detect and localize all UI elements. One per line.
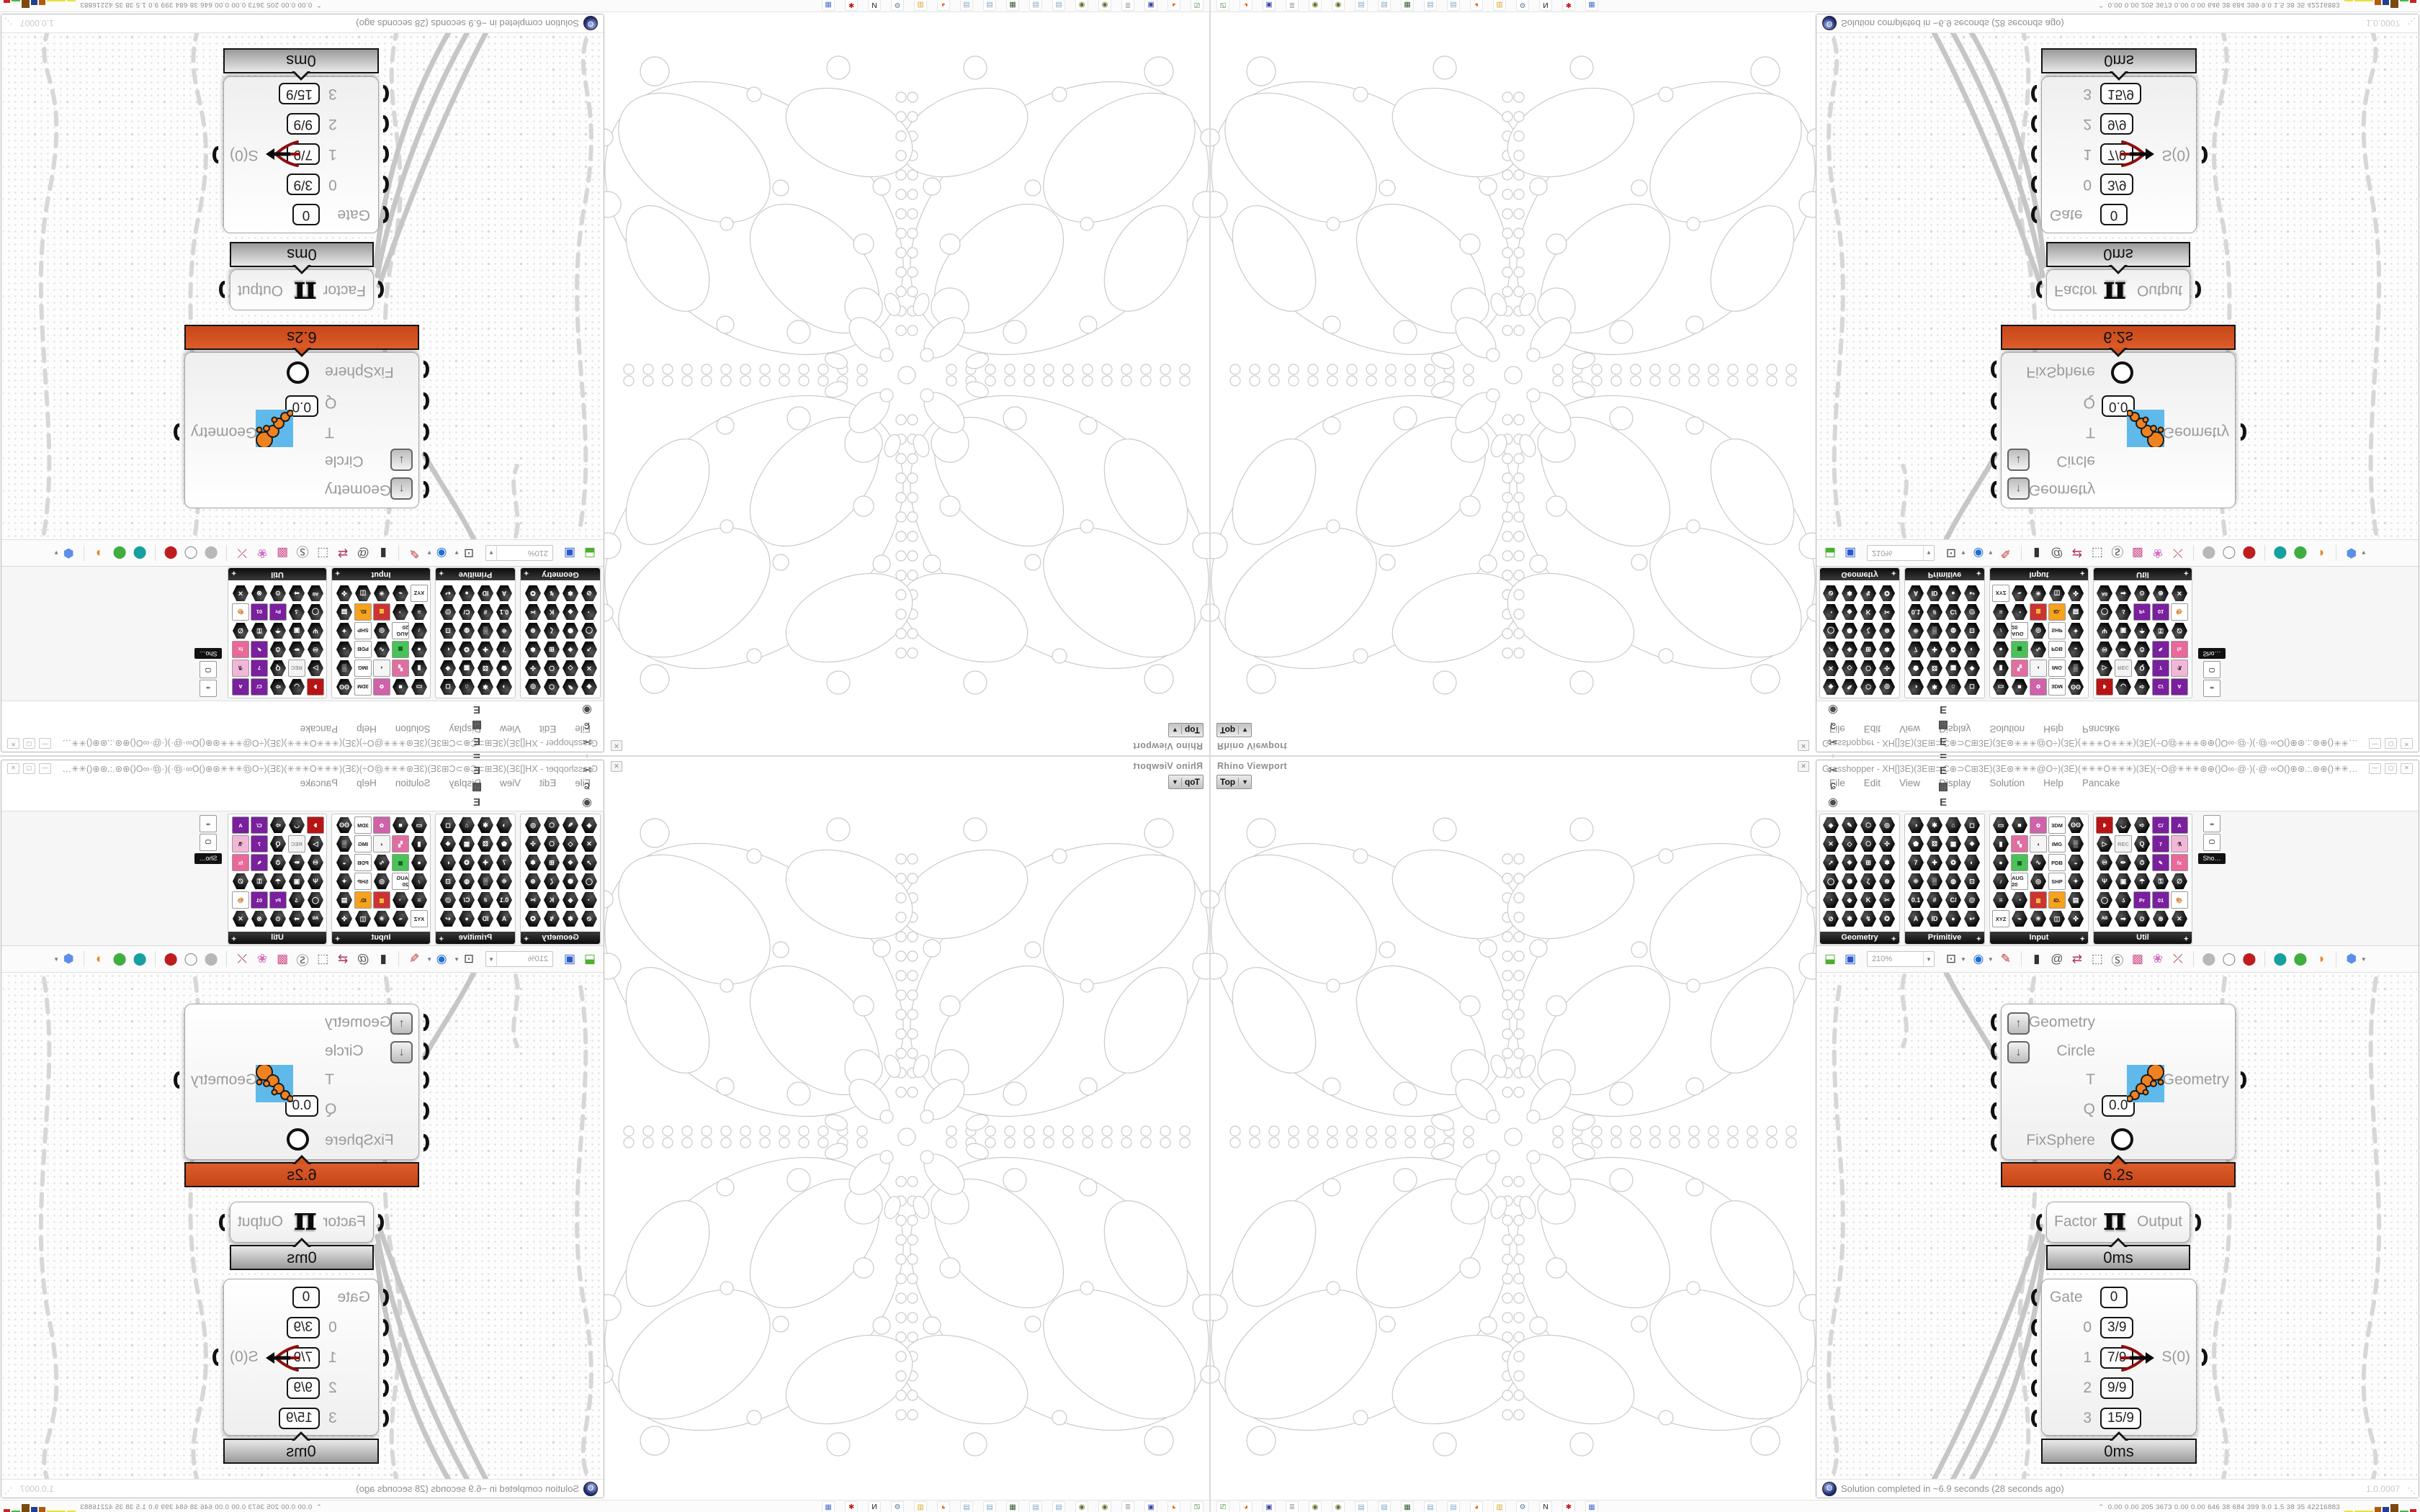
palette-icon[interactable]: ✦	[2067, 873, 2084, 890]
taskbar-icon[interactable]: ◕	[937, 1501, 950, 1512]
palette-icon[interactable]: C/	[251, 816, 268, 834]
palette-icon[interactable]: ⬡	[543, 678, 560, 696]
palette-label[interactable]: Geometry✦	[1820, 568, 1899, 580]
palette-icon[interactable]: C/	[2152, 816, 2169, 834]
component-pi[interactable]: Factor π Output	[2046, 269, 2190, 310]
taskbar-icon[interactable]: ◉	[1332, 1501, 1345, 1512]
palette-icon[interactable]: ▷	[307, 660, 324, 677]
taskbar-icon[interactable]: ▤	[1355, 1501, 1368, 1512]
title-bar[interactable]: Grasshopper - XH[]3E)(3E⊞⊃C⊕⊃C⊞3E)(3E⊛✳✳…	[1816, 736, 2419, 752]
menu-pancake[interactable]: Pancake	[300, 721, 339, 734]
palette-icon[interactable]: ⊡	[1963, 873, 1981, 890]
palette-icon[interactable]: A	[496, 585, 513, 602]
up-arrow-button[interactable]: ↑	[2007, 1012, 2030, 1035]
palette-icon[interactable]: #	[477, 603, 494, 621]
palette-icon[interactable]: ⬟	[496, 835, 513, 852]
taskbar-icon[interactable]: ◉	[1098, 1501, 1111, 1512]
component-main[interactable]: ↑ ↓ Geometry Circle T Q FixSphere 0.0	[2001, 352, 2236, 508]
gate-value-box[interactable]: 3/9	[2100, 174, 2133, 195]
palette-icon[interactable]: Ψ	[2096, 622, 2113, 639]
overflow-label[interactable]: Sho…	[194, 853, 222, 864]
palette-label[interactable]: Primitive✦	[436, 932, 515, 944]
taskbar-icon[interactable]: ▤	[1447, 1501, 1460, 1512]
palette-icon[interactable]: ◯	[307, 603, 324, 621]
save-file-icon[interactable]: ▣	[1842, 545, 1858, 561]
chevron-down-icon[interactable]: ▼	[1923, 952, 1934, 966]
palette-icon[interactable]: ડ	[288, 891, 305, 909]
palette-icon[interactable]: ●	[1992, 854, 2009, 871]
palette-icon[interactable]: ⊛	[524, 873, 542, 890]
gate-value-box[interactable]: 3/9	[287, 174, 320, 195]
palette-icon[interactable]: ◐	[1963, 641, 1981, 658]
component-gate[interactable]: Gate003/917/929/9315/9 S(0)	[223, 76, 379, 233]
palette-icon[interactable]: ID	[477, 585, 494, 602]
palette-icon[interactable]: ⎔	[1860, 660, 1877, 677]
palette-icon[interactable]: ⬢	[1841, 873, 1858, 890]
palette-icon[interactable]: ◒	[336, 854, 353, 871]
palette-icon[interactable]: ▒	[477, 873, 494, 890]
palette-icon[interactable]: ◒	[2067, 854, 2084, 871]
palette-icon[interactable]: ◔	[392, 891, 409, 909]
palette-icon[interactable]: 7	[251, 660, 268, 677]
palette-icon[interactable]: ▤	[2067, 603, 2084, 621]
toolbar-icon[interactable]: ⤫	[2170, 545, 2186, 561]
palette-label[interactable]: Util✦	[228, 568, 326, 580]
chevron-down-icon[interactable]: ▼	[486, 952, 497, 966]
palette-icon[interactable]: ✚	[477, 641, 494, 658]
palette-icon[interactable]: ▥	[2030, 603, 2047, 621]
gate-value-box[interactable]: 3/9	[2100, 1317, 2133, 1338]
gate-value-box[interactable]: 3/9	[287, 1317, 320, 1338]
palette-icon[interactable]: ◻	[1963, 678, 1981, 696]
palette-icon[interactable]: 7	[2152, 660, 2169, 677]
gate-value-box[interactable]: 0	[292, 1287, 320, 1308]
taskbar-icon[interactable]: ⎚	[1216, 0, 1229, 11]
taskbar-icon[interactable]: ◉	[1075, 0, 1088, 11]
palette-icon[interactable]: ▦	[2011, 641, 2028, 658]
palette-icon[interactable]: ⊞	[543, 854, 560, 871]
palette-icon[interactable]: @	[439, 603, 457, 621]
palette-icon[interactable]: ◍	[1945, 873, 1962, 890]
toolbar-icon[interactable]: Ⓢ	[295, 545, 310, 561]
palette-icon[interactable]: ⊡	[439, 873, 457, 890]
palette-icon[interactable]: ☂	[269, 873, 287, 890]
palette-icon[interactable]: ∅	[2171, 622, 2188, 639]
chevron-down-icon[interactable]: ▼	[1988, 550, 1994, 557]
palette-icon[interactable]: ID	[1926, 585, 1943, 602]
taskbar-icon[interactable]: ◕	[1168, 1501, 1180, 1512]
palette-label[interactable]: Input✦	[332, 932, 430, 944]
palette-icon[interactable]: ⎔	[1860, 835, 1877, 852]
palette-icon[interactable]: ❂	[1945, 641, 1962, 658]
palette-icon[interactable]: ➡	[2115, 910, 2132, 927]
palette-icon[interactable]: AUG 20	[392, 873, 409, 890]
palette-icon[interactable]: ↩	[439, 585, 457, 602]
save-file-icon[interactable]: ▣	[1842, 951, 1858, 967]
toolbar-icon[interactable]: ❀	[2150, 545, 2166, 561]
maximize-button[interactable]: ▢	[23, 763, 35, 774]
resize-grip[interactable]: ⋱	[2408, 17, 2416, 26]
palette-icon[interactable]: ▒	[1926, 873, 1943, 890]
palette-icon[interactable]: ❥	[307, 678, 324, 696]
palette-icon[interactable]: Q	[2133, 835, 2151, 852]
palette-icon[interactable]: ✽	[524, 641, 542, 658]
palette-icon[interactable]: ◎	[1878, 678, 1896, 696]
menu-help[interactable]: Help	[357, 721, 377, 734]
palette-icon[interactable]: ID	[1926, 910, 1943, 927]
palette-icon[interactable]: AUG 20	[2011, 873, 2028, 890]
palette-icon[interactable]: ✜	[336, 585, 353, 602]
palette-icon[interactable]: ◑	[1907, 816, 1924, 834]
palette-icon[interactable]: ✿	[373, 678, 390, 696]
palette-icon[interactable]: ✏	[2115, 854, 2132, 871]
palette-icon[interactable]: C/	[251, 678, 268, 696]
palette-icon[interactable]: ◡	[2115, 816, 2132, 834]
palette-icon[interactable]: A	[2171, 678, 2188, 696]
palette-label[interactable]: Util✦	[2094, 932, 2192, 944]
palette-icon[interactable]: ●	[458, 910, 475, 927]
toolbar-icon[interactable]: ❀	[2150, 951, 2166, 967]
toolbar-icon[interactable]: ⬤	[203, 951, 219, 967]
palette-icon[interactable]: ⏱	[269, 854, 287, 871]
toolbar-icon[interactable]: ⬤	[112, 545, 127, 561]
palette-icon[interactable]: ◎	[373, 622, 390, 639]
zoom-select[interactable]: 210% ▼	[485, 951, 553, 967]
viewport-close-icon[interactable]: ✕	[1798, 740, 1809, 751]
title-bar[interactable]: Grasshopper - XH[]3E)(3E⊞⊃C⊕⊃C⊞3E)(3E⊛✳✳…	[1, 760, 604, 776]
palette-icon[interactable]: ✕	[581, 660, 598, 677]
palette-icon[interactable]: ID.	[354, 603, 372, 621]
palette-icon[interactable]: ∿	[2030, 854, 2047, 871]
category-tab[interactable]: ɕ	[1821, 718, 1845, 734]
palette-icon[interactable]: ▒	[2067, 660, 2084, 677]
palette-icon[interactable]: ❂	[458, 854, 475, 871]
category-tab[interactable]: E	[1932, 702, 1955, 718]
palette-icon[interactable]: A	[232, 816, 249, 834]
palette-icon[interactable]: ❖	[562, 854, 579, 871]
palette-icon[interactable]: 3DM	[354, 678, 372, 696]
palette-icon[interactable]: ▚	[2011, 835, 2028, 852]
palette-icon[interactable]: ♪	[411, 622, 428, 639]
gate-value-box[interactable]: 0	[2100, 204, 2128, 225]
palette-label[interactable]: Input✦	[1990, 932, 2088, 944]
palette-icon[interactable]: ◔	[392, 603, 409, 621]
palette-icon[interactable]: IMG	[354, 660, 372, 677]
menu-edit[interactable]: Edit	[1864, 721, 1881, 734]
viewport-view-button[interactable]: Top ▼	[1168, 723, 1204, 737]
palette-icon[interactable]: 7	[1907, 641, 1924, 658]
toolbar-icon[interactable]: ⬚	[2089, 951, 2105, 967]
palette-icon[interactable]: ⌁	[2011, 910, 2028, 927]
palette-icon[interactable]: ➪	[2133, 816, 2151, 834]
palette-icon[interactable]: ∅	[232, 622, 249, 639]
up-arrow-button[interactable]: ↑	[2007, 477, 2030, 500]
palette-icon[interactable]: ✎	[251, 641, 268, 658]
palette-icon[interactable]: ☂	[2133, 622, 2151, 639]
toolbar-icon[interactable]: ⇄	[335, 951, 351, 967]
palette-icon[interactable]: ⌁	[392, 585, 409, 602]
palette-icon[interactable]: ◫	[354, 910, 372, 927]
palette-icon[interactable]: AUG 20	[392, 622, 409, 639]
palette-icon[interactable]: #	[1926, 603, 1943, 621]
toolbar-icon[interactable]: ⬤	[2241, 545, 2257, 561]
palette-icon[interactable]: ✂	[1878, 891, 1896, 909]
palette-icon[interactable]: ≡	[411, 603, 428, 621]
palette-icon[interactable]: ❖	[439, 660, 457, 677]
taskbar-icon[interactable]: ⚙	[1516, 1501, 1529, 1512]
gh-canvas[interactable]: ↑ ↓ Geometry Circle T Q FixSphere 0.0	[3, 30, 602, 539]
toolbar-icon[interactable]: ▮	[2029, 545, 2045, 561]
taskbar-icon[interactable]: ▤	[1424, 0, 1437, 11]
palette-icon[interactable]: ◎	[2030, 873, 2047, 890]
toolbar-icon[interactable]: ⬤	[2293, 545, 2308, 561]
palette-icon[interactable]: ▤	[336, 603, 353, 621]
palette-icon[interactable]: ⚗	[2171, 835, 2188, 852]
category-tab[interactable]: ✂	[575, 734, 599, 750]
toolbar-icon[interactable]: ⬤	[163, 545, 179, 561]
palette-icon[interactable]: ✣	[1878, 835, 1896, 852]
palette-icon[interactable]: ◔	[581, 891, 598, 909]
maximize-button[interactable]: ▢	[2385, 739, 2397, 750]
menu-solution[interactable]: Solution	[1989, 778, 2025, 791]
palette-icon[interactable]: ⚄	[477, 660, 494, 677]
taskbar-icon[interactable]: ⚙	[891, 1501, 904, 1512]
menu-solution[interactable]: Solution	[1989, 721, 2025, 734]
palette-icon[interactable]: A	[1907, 585, 1924, 602]
taskbar-icon[interactable]: ◕	[1240, 1501, 1252, 1512]
palette-icon[interactable]: ✚	[477, 854, 494, 871]
palette-icon[interactable]: ◡	[2115, 678, 2132, 696]
viewport-view-button[interactable]: Top ▼	[1168, 775, 1204, 789]
palette-icon[interactable]: ◇	[562, 660, 579, 677]
toolbar-icon[interactable]: ▩	[274, 951, 290, 967]
component-pi[interactable]: Factor π Output	[230, 269, 374, 310]
palette-icon[interactable]: ➚	[1822, 854, 1839, 871]
category-tab[interactable]: ▼	[575, 756, 599, 762]
palette-icon[interactable]: ▥	[373, 891, 390, 909]
palette-label[interactable]: Geometry✦	[521, 568, 600, 580]
chevron-down-icon[interactable]: ▼	[2361, 956, 2367, 963]
palette-icon[interactable]: 0.1	[496, 891, 513, 909]
toolbar-icon[interactable]: ⬤	[2293, 951, 2308, 967]
palette-icon[interactable]: ✎	[251, 854, 268, 871]
taskbar-icon[interactable]: ▦	[822, 1501, 835, 1512]
toolbar-icon[interactable]: ⬤	[2201, 951, 2217, 967]
palette-icon[interactable]: 0.1	[496, 603, 513, 621]
component-main[interactable]: ↑ ↓ Geometry Circle T Q FixSphere 0.0	[2001, 1004, 2236, 1160]
palette-icon[interactable]: IMG	[2048, 835, 2066, 852]
palette-icon[interactable]: ◯	[2096, 603, 2113, 621]
palette-icon[interactable]: ❃	[1841, 585, 1858, 602]
palette-icon[interactable]: ✱	[1926, 678, 1943, 696]
palette-icon[interactable]: ✕	[232, 585, 249, 602]
palette-icon[interactable]: ▒	[2067, 835, 2084, 852]
taskbar-icon[interactable]: ◉	[1332, 0, 1345, 11]
palette-icon[interactable]: 🖵	[2203, 834, 2220, 851]
chevron-down-icon[interactable]: ▼	[426, 956, 432, 963]
palette-icon[interactable]: ✽	[1878, 641, 1896, 658]
palette-icon[interactable]: ◍	[458, 873, 475, 890]
chevron-down-icon[interactable]: ▼	[53, 956, 59, 963]
taskbar-icon[interactable]: ▦	[1585, 1501, 1598, 1512]
palette-icon[interactable]: ⏱	[2133, 854, 2151, 871]
toolbar-icon[interactable]: ⤫	[234, 545, 250, 561]
palette-icon[interactable]: 🎨	[2171, 891, 2188, 909]
palette-icon[interactable]: ◇	[1841, 660, 1858, 677]
taskbar-icon[interactable]: ≣	[1286, 1501, 1299, 1512]
palette-icon[interactable]: ▦	[392, 854, 409, 871]
palette-icon[interactable]: ➪	[2133, 678, 2151, 696]
palette-icon[interactable]: ◍	[458, 622, 475, 639]
chevron-down-icon[interactable]: ▼	[53, 550, 59, 557]
palette-icon[interactable]: ડ	[2115, 603, 2132, 621]
category-tab[interactable]: E	[1932, 750, 1955, 756]
palette-icon[interactable]: ✕	[1822, 660, 1839, 677]
toolbar-icon[interactable]: @	[355, 545, 371, 561]
toolbar-icon[interactable]: ⬤	[112, 951, 127, 967]
category-tab[interactable]: ɕ	[1821, 778, 1845, 794]
taskbar-icon[interactable]: ⎚	[1191, 1501, 1204, 1512]
palette-icon[interactable]: ⊗	[2152, 910, 2169, 927]
palette-icon[interactable]: ᴬᴮ	[307, 585, 324, 602]
toolbar-icon[interactable]: Ⓢ	[2110, 951, 2125, 967]
palette-icon[interactable]: Ψ	[307, 873, 324, 890]
category-tab[interactable]: E	[1932, 734, 1955, 750]
palette-icon[interactable]: ⊡	[439, 622, 457, 639]
overflow-label[interactable]: Sho…	[194, 648, 222, 659]
gate-value-box[interactable]: 9/9	[2100, 1377, 2133, 1399]
menu-edit[interactable]: Edit	[539, 778, 556, 791]
palette-icon[interactable]: XYZ	[1992, 910, 2009, 927]
taskbar-icon[interactable]: ✱	[845, 0, 858, 11]
palette-icon[interactable]: ID	[477, 910, 494, 927]
palette-icon[interactable]: ◻	[1963, 816, 1981, 834]
palette-icon[interactable]: ◡	[288, 678, 305, 696]
palette-icon[interactable]: ◯	[581, 873, 598, 890]
palette-icon[interactable]: ◫	[354, 585, 372, 602]
palette-icon[interactable]: 3DM	[354, 816, 372, 834]
category-tab[interactable]: ɕ	[575, 718, 599, 734]
palette-icon[interactable]: XYZ	[411, 585, 428, 602]
toolbar-icon[interactable]: Ⓢ	[2110, 545, 2125, 561]
palette-icon[interactable]: ↯	[543, 910, 560, 927]
taskbar-icon[interactable]: ▤	[983, 0, 996, 11]
palette-icon[interactable]: ID.	[354, 891, 372, 909]
palette-icon[interactable]: REC	[288, 835, 305, 852]
palette-icon[interactable]: ⚄	[477, 835, 494, 852]
up-arrow-button[interactable]: ↑	[390, 1012, 413, 1035]
taskbar-icon[interactable]: ▦	[1585, 0, 1598, 11]
palette-icon[interactable]: ⊗	[2152, 585, 2169, 602]
palette-icon[interactable]: ❖	[1841, 641, 1858, 658]
palette-icon[interactable]: ⊙	[2133, 910, 2151, 927]
tray-chevron-icon[interactable]: ⌃	[2098, 1, 2104, 9]
palette-icon[interactable]: ♾	[2096, 641, 2113, 658]
menu-solution[interactable]: Solution	[395, 721, 431, 734]
palette-icon[interactable]: ▥	[373, 603, 390, 621]
palette-icon[interactable]: ▒	[336, 660, 353, 677]
palette-icon[interactable]: ⎔	[543, 835, 560, 852]
palette-icon[interactable]: ➡	[288, 910, 305, 927]
toolbar-icon[interactable]: ⬚	[315, 951, 331, 967]
palette-icon[interactable]: 01	[251, 891, 268, 909]
down-arrow-button[interactable]: ↓	[390, 449, 413, 471]
palette-icon[interactable]: ⎔	[543, 660, 560, 677]
category-tab[interactable]: ◉	[1821, 794, 1845, 810]
category-tab[interactable]: E	[1932, 794, 1955, 810]
palette-icon[interactable]: ✂	[524, 603, 542, 621]
component-pi[interactable]: Factor π Output	[2046, 1202, 2190, 1243]
menu-solution[interactable]: Solution	[395, 778, 431, 791]
category-tab[interactable]: ◉	[1821, 702, 1845, 718]
palette-icon[interactable]: ⊞	[543, 641, 560, 658]
component-gate[interactable]: Gate003/917/929/9315/9 S(0)	[2041, 76, 2197, 233]
palette-icon[interactable]: 01	[2152, 603, 2169, 621]
palette-icon[interactable]: ✂	[1878, 603, 1896, 621]
palette-icon[interactable]: ⬢	[562, 873, 579, 890]
palette-icon[interactable]: ◐	[439, 641, 457, 658]
toolbar-icon[interactable]: ▩	[2130, 951, 2146, 967]
palette-icon[interactable]: ID.	[2048, 603, 2066, 621]
palette-icon[interactable]: ✏	[2115, 641, 2132, 658]
down-arrow-button[interactable]: ↓	[390, 1041, 413, 1063]
toolbar-icon[interactable]: ❀	[254, 951, 270, 967]
palette-icon[interactable]: ⁜	[1907, 873, 1924, 890]
toolbar-icon[interactable]: ⬤	[2201, 545, 2217, 561]
category-tab[interactable]: E	[1932, 762, 1955, 778]
title-bar[interactable]: Grasshopper - XH[]3E)(3E⊞⊃C⊕⊃C⊞3E)(3E⊛✳✳…	[1816, 760, 2419, 776]
palette-icon[interactable]: ⬡	[543, 816, 560, 834]
palette-icon[interactable]: 7	[496, 641, 513, 658]
toolbar-icon[interactable]: ⊡	[461, 545, 477, 561]
palette-icon[interactable]: ◆	[1841, 603, 1858, 621]
palette-icon[interactable]: K	[1860, 603, 1877, 621]
palette-icon[interactable]: ⌁	[2011, 585, 2028, 602]
palette-icon[interactable]: ⁜	[496, 873, 513, 890]
toolbar-icon[interactable]: ◉	[1971, 545, 1986, 561]
palette-icon[interactable]: ▦	[2011, 854, 2028, 871]
palette-icon[interactable]: ⁜	[1907, 622, 1924, 639]
taskbar-icon[interactable]: ◕	[937, 0, 950, 11]
category-tab[interactable]: E	[465, 750, 488, 756]
palette-icon[interactable]: XYZ	[1992, 585, 2009, 602]
palette-icon[interactable]: ✽	[524, 854, 542, 871]
component-gate[interactable]: Gate003/917/929/9315/9 S(0)	[2041, 1279, 2197, 1436]
palette-icon[interactable]: ⬢	[1841, 622, 1858, 639]
palette-icon[interactable]: ▤	[2067, 891, 2084, 909]
palette-icon[interactable]: ◆	[1841, 891, 1858, 909]
maximize-button[interactable]: ▢	[2385, 763, 2397, 774]
toolbar-icon[interactable]: ⬤	[2272, 951, 2288, 967]
taskbar-icon[interactable]: ▤	[983, 1501, 996, 1512]
palette-icon[interactable]: Q	[2133, 660, 2151, 677]
category-tab[interactable]: ◉	[575, 702, 599, 718]
palette-icon[interactable]: ζ	[543, 622, 560, 639]
palette-icon[interactable]: 🎨	[232, 891, 249, 909]
toolbar-icon[interactable]: @	[2049, 545, 2065, 561]
tray-chevron-icon[interactable]: ⌃	[2098, 1503, 2104, 1511]
palette-label[interactable]: Util✦	[2094, 568, 2192, 580]
palette-icon[interactable]: REC	[288, 660, 305, 677]
palette-icon[interactable]: ◒	[336, 641, 353, 658]
palette-icon[interactable]: ◔	[2011, 603, 2028, 621]
palette-icon[interactable]: Pr	[2133, 603, 2151, 621]
palette-icon[interactable]: C/	[2152, 678, 2169, 696]
palette-icon[interactable]: K	[1860, 891, 1877, 909]
palette-icon[interactable]: ✂	[524, 891, 542, 909]
palette-icon[interactable]: ◐	[439, 854, 457, 871]
palette-icon[interactable]: AUG 20	[2011, 622, 2028, 639]
